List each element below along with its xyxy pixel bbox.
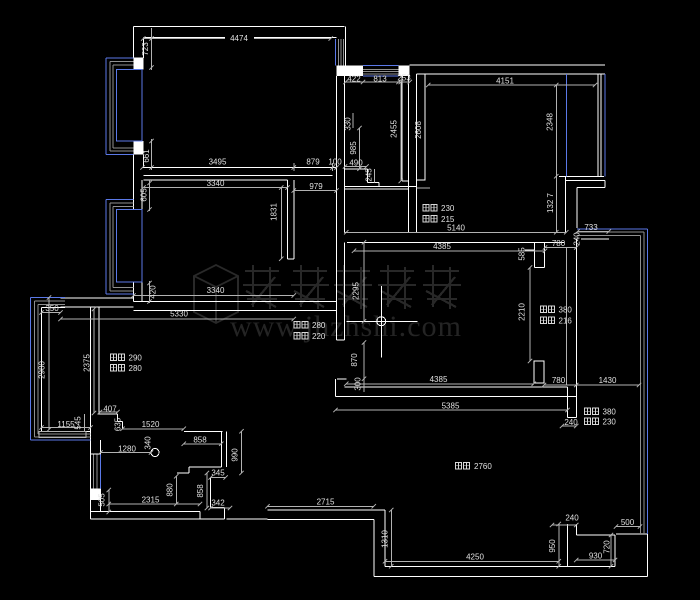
svg-text:2715: 2715	[317, 498, 335, 507]
svg-text:3495: 3495	[209, 158, 227, 167]
svg-text:340: 340	[144, 436, 153, 450]
svg-text:985: 985	[349, 141, 358, 155]
svg-text:505: 505	[98, 493, 107, 507]
svg-text:545: 545	[74, 416, 83, 430]
svg-text:780: 780	[552, 376, 566, 385]
svg-text:813: 813	[373, 75, 387, 84]
svg-text:490: 490	[349, 159, 363, 168]
svg-text:1831: 1831	[270, 203, 279, 221]
svg-text:2760: 2760	[474, 462, 492, 471]
svg-text:300: 300	[354, 377, 363, 391]
svg-text:635: 635	[114, 417, 123, 431]
svg-text:280: 280	[312, 321, 326, 330]
svg-text:858: 858	[196, 484, 205, 498]
svg-text:4250: 4250	[466, 553, 484, 562]
svg-text:407: 407	[103, 405, 117, 414]
svg-text:230: 230	[603, 418, 617, 427]
svg-text:870: 870	[350, 353, 359, 367]
svg-text:342: 342	[211, 499, 225, 508]
svg-text:230: 230	[441, 204, 455, 213]
svg-text:216: 216	[559, 317, 573, 326]
svg-text:330: 330	[344, 117, 353, 131]
svg-text:240: 240	[565, 514, 579, 523]
svg-text:5330: 5330	[170, 310, 188, 319]
svg-text:345: 345	[211, 469, 225, 478]
svg-text:420: 420	[149, 285, 158, 299]
svg-text:240: 240	[564, 418, 578, 427]
svg-text:380: 380	[603, 408, 617, 417]
svg-text:380: 380	[559, 306, 573, 315]
svg-text:2295: 2295	[352, 282, 361, 300]
svg-text:605: 605	[140, 188, 149, 202]
svg-text:1520: 1520	[142, 420, 160, 429]
svg-text:4151: 4151	[496, 77, 514, 86]
svg-text:350: 350	[45, 304, 59, 313]
svg-text:879: 879	[306, 158, 320, 167]
svg-text:100: 100	[328, 158, 342, 167]
svg-text:733: 733	[584, 223, 598, 232]
svg-text:5140: 5140	[447, 224, 465, 233]
svg-text:950: 950	[548, 539, 557, 553]
svg-text:2210: 2210	[518, 303, 527, 321]
svg-text:4385: 4385	[433, 242, 451, 251]
svg-text:www.jhzhshi.com: www.jhzhshi.com	[230, 310, 462, 343]
svg-text:5385: 5385	[442, 402, 460, 411]
svg-text:1155: 1155	[57, 420, 75, 429]
svg-text:930: 930	[589, 552, 603, 561]
svg-text:3340: 3340	[207, 179, 225, 188]
svg-text:132 7: 132 7	[546, 192, 555, 213]
svg-text:723: 723	[141, 42, 150, 56]
svg-text:2980: 2980	[38, 361, 47, 379]
svg-text:1280: 1280	[118, 445, 136, 454]
svg-text:2455: 2455	[390, 120, 399, 138]
svg-text:780: 780	[552, 239, 566, 248]
svg-text:245: 245	[365, 168, 374, 182]
svg-text:422: 422	[347, 75, 361, 84]
svg-text:880: 880	[166, 483, 175, 497]
svg-text:4474: 4474	[230, 34, 248, 43]
svg-text:720: 720	[603, 540, 612, 554]
svg-text:990: 990	[231, 448, 240, 462]
svg-text:979: 979	[309, 182, 323, 191]
svg-text:4385: 4385	[430, 375, 448, 384]
svg-text:661: 661	[142, 149, 151, 163]
svg-text:1430: 1430	[599, 376, 617, 385]
svg-text:585: 585	[518, 247, 527, 261]
svg-text:280: 280	[129, 364, 143, 373]
svg-text:1310: 1310	[381, 530, 390, 548]
svg-text:3340: 3340	[207, 286, 225, 295]
svg-text:220: 220	[312, 332, 326, 341]
svg-text:290: 290	[129, 354, 143, 363]
svg-text:858: 858	[193, 436, 207, 445]
svg-text:240: 240	[573, 232, 582, 246]
svg-text:2348: 2348	[546, 113, 555, 131]
svg-text:2608: 2608	[414, 121, 423, 139]
svg-text:253: 253	[397, 74, 411, 83]
svg-text:2375: 2375	[83, 354, 92, 372]
svg-text:500: 500	[621, 518, 635, 527]
svg-text:2315: 2315	[142, 496, 160, 505]
